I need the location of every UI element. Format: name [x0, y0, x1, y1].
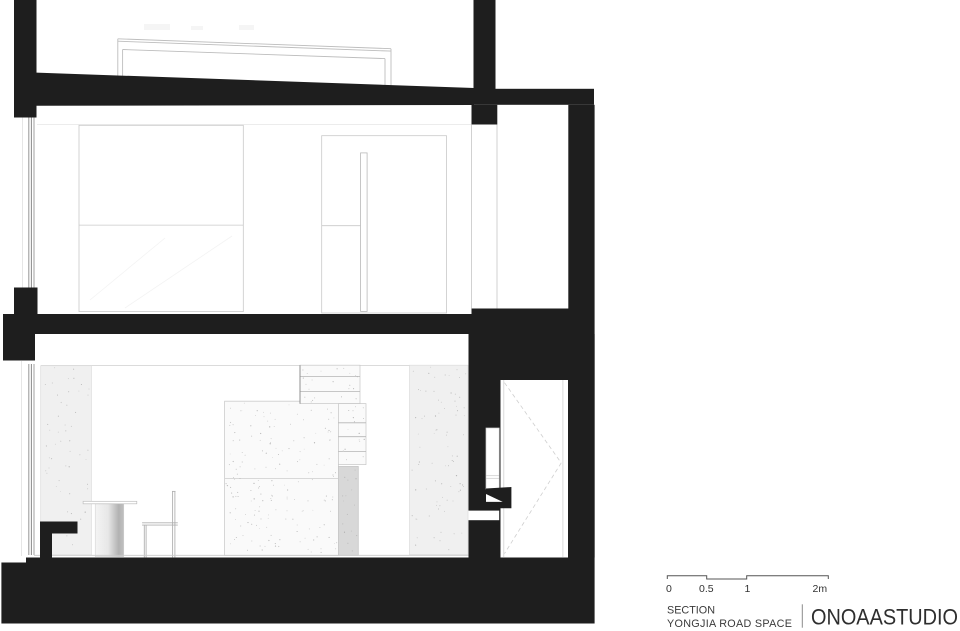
svg-text:0.5: 0.5 — [699, 583, 714, 595]
svg-text:YONGJIA ROAD SPACE: YONGJIA ROAD SPACE — [667, 618, 792, 630]
svg-text:1: 1 — [745, 583, 751, 595]
svg-text:SECTION: SECTION — [667, 605, 715, 617]
svg-text:2m: 2m — [813, 583, 828, 595]
svg-text:0: 0 — [666, 583, 672, 595]
svg-text:ONOAASTUDIO: ONOAASTUDIO — [811, 605, 958, 630]
